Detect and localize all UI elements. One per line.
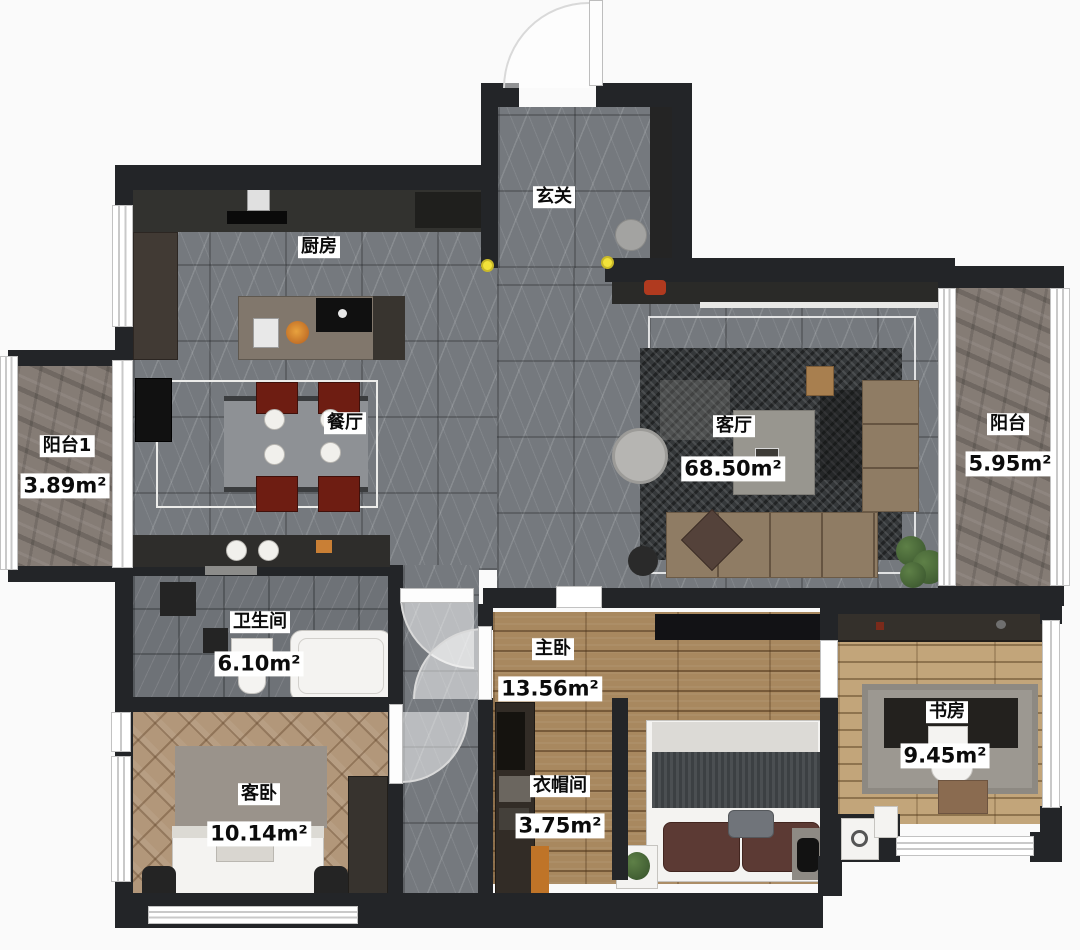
room-area-balcony2: 5.95m² xyxy=(966,451,1055,476)
master-suite-threshold xyxy=(556,586,602,608)
bathroom-door-leaf xyxy=(400,588,474,603)
range-hood xyxy=(227,211,287,224)
room-label-master-bedroom: 主卧 xyxy=(532,638,574,660)
master-door-leaf xyxy=(478,626,492,700)
room-area-master-bedroom: 13.56m² xyxy=(498,676,602,701)
room-label-closet: 衣帽间 xyxy=(530,775,590,797)
basin xyxy=(226,540,247,561)
room-label-bathroom: 卫生间 xyxy=(230,611,290,633)
balcony2-window xyxy=(1050,288,1070,586)
island-cabinet xyxy=(373,296,405,360)
entry-floor xyxy=(498,107,674,268)
floor-plan: 玄关 厨房 餐厅 客厅 68.50m² 阳台1 3.89m² 阳台 5.95m²… xyxy=(0,0,1080,950)
basin xyxy=(258,540,279,561)
side-table xyxy=(806,366,834,396)
wall xyxy=(115,165,497,190)
floor-lamp xyxy=(628,546,658,576)
washing-machine-door xyxy=(851,830,868,847)
wall xyxy=(605,258,955,282)
closet-shelf xyxy=(499,776,531,802)
bathtub-inner xyxy=(298,638,384,694)
dining-chair xyxy=(318,382,360,414)
fridge xyxy=(135,378,172,442)
guest-bedroom-window xyxy=(111,756,131,882)
guest-bedroom-window-upper xyxy=(111,712,131,752)
sofa xyxy=(862,380,919,512)
room-label-entry: 玄关 xyxy=(533,186,575,208)
balcony1-sliding-door xyxy=(112,360,133,568)
wall xyxy=(133,697,403,712)
wall xyxy=(612,698,628,880)
wall xyxy=(672,83,692,266)
tv-shelf xyxy=(700,302,938,308)
wall xyxy=(818,856,842,896)
bed-runner xyxy=(652,722,818,752)
wall xyxy=(481,83,498,268)
room-area-balcony1: 3.89m² xyxy=(21,473,110,498)
study-wardrobe xyxy=(838,614,1042,642)
kitchen-sink xyxy=(247,189,270,211)
washer-box xyxy=(160,582,196,616)
nightstand-tray xyxy=(797,838,819,872)
plate xyxy=(264,444,285,465)
balcony1-floor xyxy=(18,364,114,568)
balcony1-window xyxy=(0,356,18,570)
entry-door-arc xyxy=(503,2,589,88)
living-balcony-sliding-door xyxy=(938,288,956,586)
cabinet-knob xyxy=(876,622,884,630)
study-door-jamb xyxy=(820,640,838,698)
dining-chair xyxy=(318,476,360,512)
kitchen-window xyxy=(112,205,133,327)
plate xyxy=(320,442,341,463)
utility-box xyxy=(874,806,898,838)
bed-blanket xyxy=(652,752,822,808)
floor-drain xyxy=(203,628,228,653)
wall xyxy=(1030,832,1062,862)
round-table xyxy=(612,428,668,484)
room-label-balcony2: 阳台 xyxy=(987,413,1029,435)
room-area-guest-bedroom: 10.14m² xyxy=(207,821,311,846)
wall xyxy=(8,350,116,366)
cooktop xyxy=(253,318,279,348)
guest-bedroom-bottom-window xyxy=(148,906,358,924)
room-label-guest-bedroom: 客卧 xyxy=(238,783,280,805)
guest-door-leaf xyxy=(389,704,403,784)
vanity-shelf xyxy=(205,566,257,575)
hanging-clothes xyxy=(497,712,525,770)
bed-cushion xyxy=(728,810,774,838)
plant xyxy=(900,562,926,588)
dining-chair xyxy=(256,476,298,512)
soap-tray xyxy=(316,540,332,553)
wall xyxy=(938,586,1064,606)
study-window xyxy=(1042,620,1060,808)
wall xyxy=(938,266,1064,288)
shoe-cabinet xyxy=(650,106,674,262)
room-area-closet: 3.75m² xyxy=(516,813,605,838)
light-marker xyxy=(481,259,494,272)
light-marker xyxy=(601,256,614,269)
room-label-dining: 餐厅 xyxy=(324,412,366,434)
room-area-study: 9.45m² xyxy=(901,743,990,768)
room-area-bathroom: 6.10m² xyxy=(215,651,304,676)
guest-wardrobe xyxy=(348,776,388,904)
desk-mat xyxy=(938,780,988,814)
room-label-kitchen: 厨房 xyxy=(298,236,340,258)
entry-door-leaf xyxy=(589,0,603,86)
study-bottom-window xyxy=(896,836,1034,856)
cabinet-knob xyxy=(996,620,1006,629)
decor-dish xyxy=(644,280,666,295)
stool xyxy=(615,219,647,251)
faucet xyxy=(338,309,347,318)
tall-cabinet xyxy=(133,232,178,360)
wall xyxy=(478,698,493,898)
room-area-living: 68.50m² xyxy=(681,456,785,481)
room-label-balcony1: 阳台1 xyxy=(40,435,95,457)
master-wardrobe xyxy=(655,614,823,640)
room-label-study: 书房 xyxy=(926,701,968,723)
balcony2-floor xyxy=(956,288,1052,588)
room-label-living: 客厅 xyxy=(713,415,755,437)
wall xyxy=(8,566,116,582)
dish xyxy=(286,321,309,344)
plate xyxy=(264,409,285,430)
